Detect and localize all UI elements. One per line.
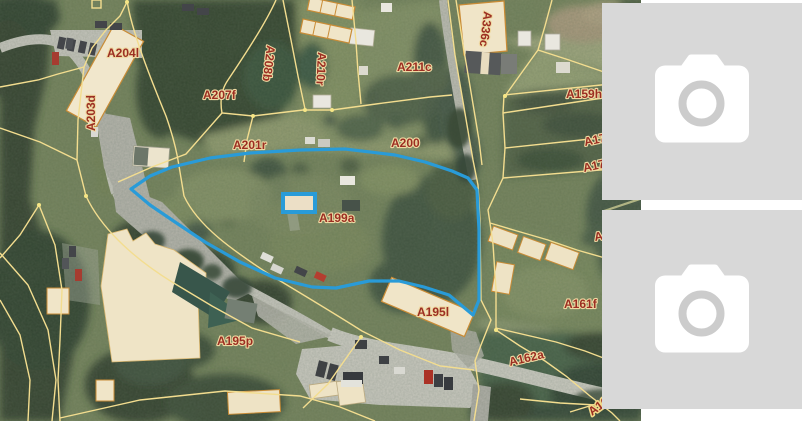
svg-text:A207f: A207f bbox=[203, 88, 237, 102]
svg-text:A201r: A201r bbox=[233, 138, 267, 152]
svg-text:A204l: A204l bbox=[107, 46, 139, 60]
svg-text:A195l: A195l bbox=[417, 305, 449, 319]
svg-text:A210r: A210r bbox=[313, 52, 329, 86]
svg-text:A203d: A203d bbox=[84, 95, 98, 131]
svg-text:A199a: A199a bbox=[319, 211, 355, 225]
svg-text:A195p: A195p bbox=[217, 334, 253, 348]
svg-text:A161f: A161f bbox=[564, 297, 598, 311]
svg-text:A159h: A159h bbox=[566, 87, 602, 101]
svg-text:A200: A200 bbox=[391, 136, 420, 150]
svg-text:A211c: A211c bbox=[397, 60, 432, 74]
